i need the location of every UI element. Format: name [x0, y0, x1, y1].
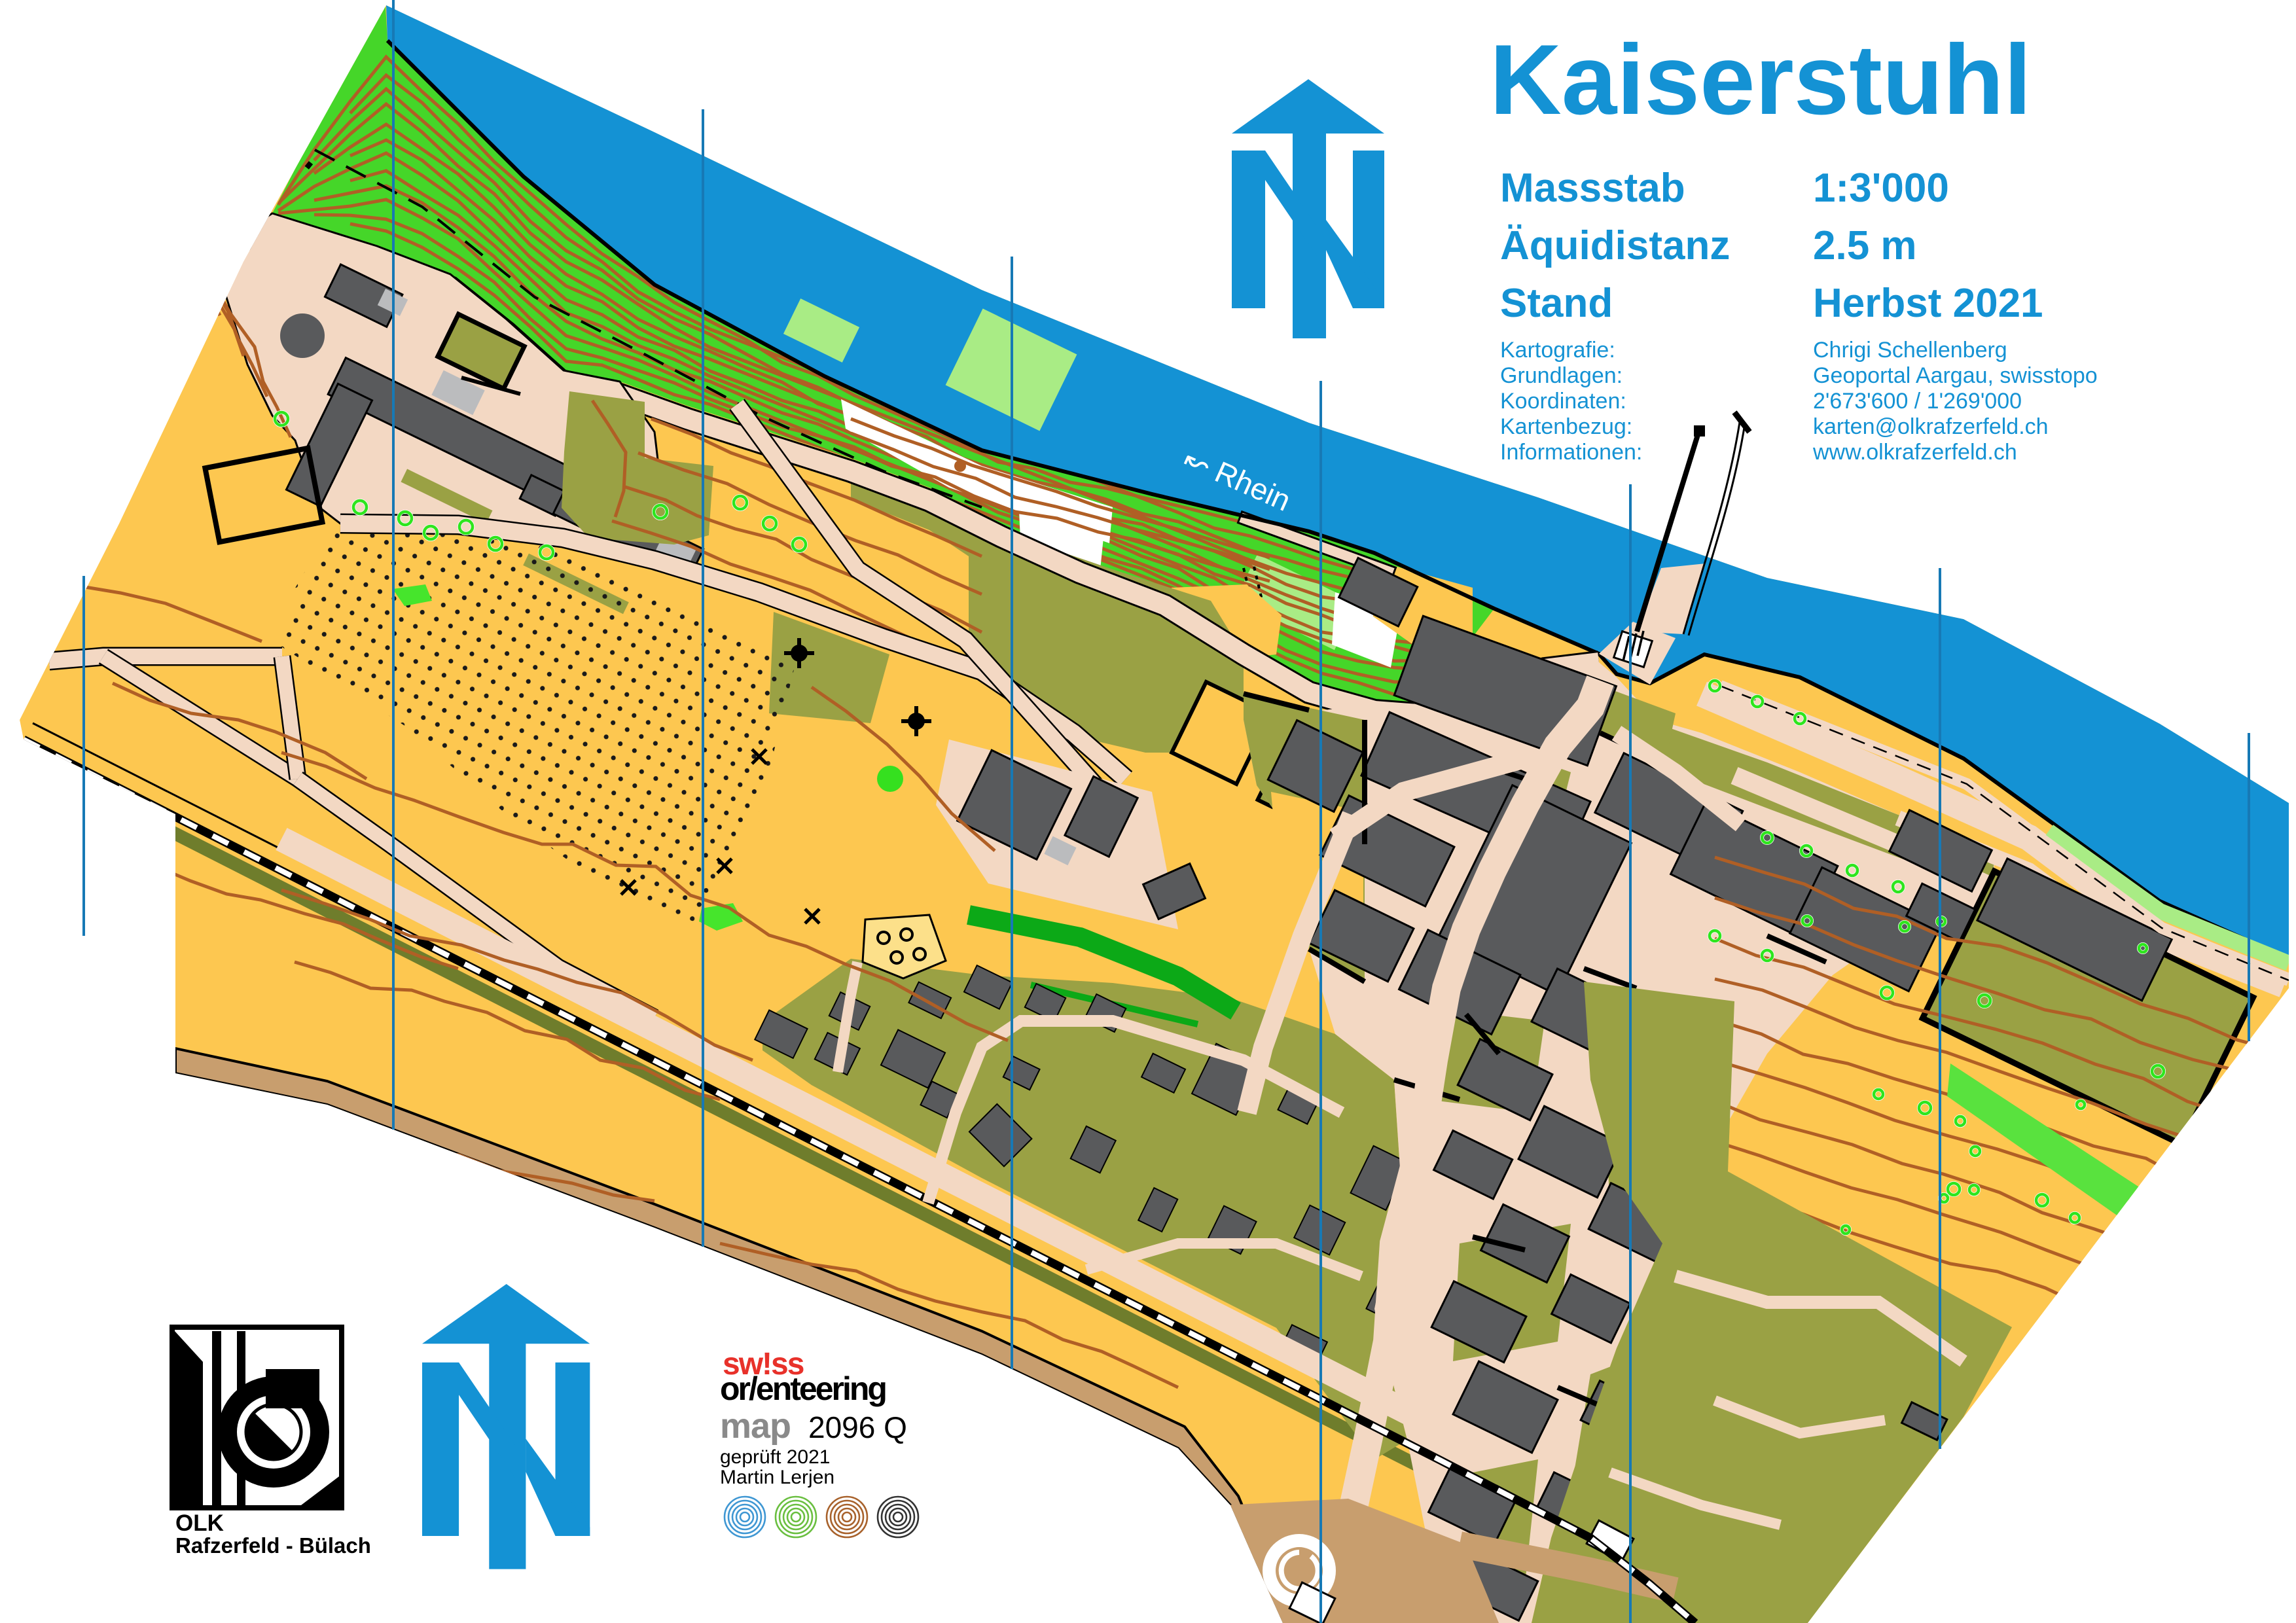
svg-text:Kartografie:: Kartografie:	[1500, 338, 1615, 363]
svg-text:2096 Q: 2096 Q	[808, 1410, 907, 1444]
svg-text:Herbst 2021: Herbst 2021	[1813, 281, 2043, 326]
svg-text:Kartenbezug:: Kartenbezug:	[1500, 414, 1632, 439]
svg-text:Koordinaten:: Koordinaten:	[1500, 389, 1626, 414]
svg-text:or/enteering: or/enteering	[720, 1370, 886, 1407]
svg-text:Informationen:: Informationen:	[1500, 440, 1642, 465]
svg-text:www.olkrafzerfeld.ch: www.olkrafzerfeld.ch	[1812, 440, 2017, 465]
svg-text:Rafzerfeld - Bülach: Rafzerfeld - Bülach	[175, 1533, 371, 1558]
svg-text:Kaiserstuhl: Kaiserstuhl	[1490, 24, 2032, 135]
svg-text:map: map	[720, 1406, 791, 1446]
svg-text:Äquidistanz: Äquidistanz	[1500, 223, 1730, 268]
svg-text:Stand: Stand	[1500, 281, 1613, 326]
svg-text:2'673'600 / 1'269'000: 2'673'600 / 1'269'000	[1813, 389, 2022, 414]
svg-text:Massstab: Massstab	[1500, 166, 1685, 211]
svg-text:Martin Lerjen: Martin Lerjen	[720, 1467, 834, 1488]
svg-text:2.5 m: 2.5 m	[1813, 223, 1917, 268]
svg-text:Grundlagen:: Grundlagen:	[1500, 363, 1623, 388]
svg-text:Geoportal Aargau, swisstopo: Geoportal Aargau, swisstopo	[1813, 363, 2098, 388]
svg-text:OLK: OLK	[175, 1510, 224, 1536]
svg-text:karten@olkrafzerfeld.ch: karten@olkrafzerfeld.ch	[1813, 414, 2049, 439]
svg-text:Chrigi Schellenberg: Chrigi Schellenberg	[1813, 338, 2007, 363]
svg-text:geprüft 2021: geprüft 2021	[720, 1446, 830, 1468]
svg-text:1:3'000: 1:3'000	[1813, 166, 1949, 211]
